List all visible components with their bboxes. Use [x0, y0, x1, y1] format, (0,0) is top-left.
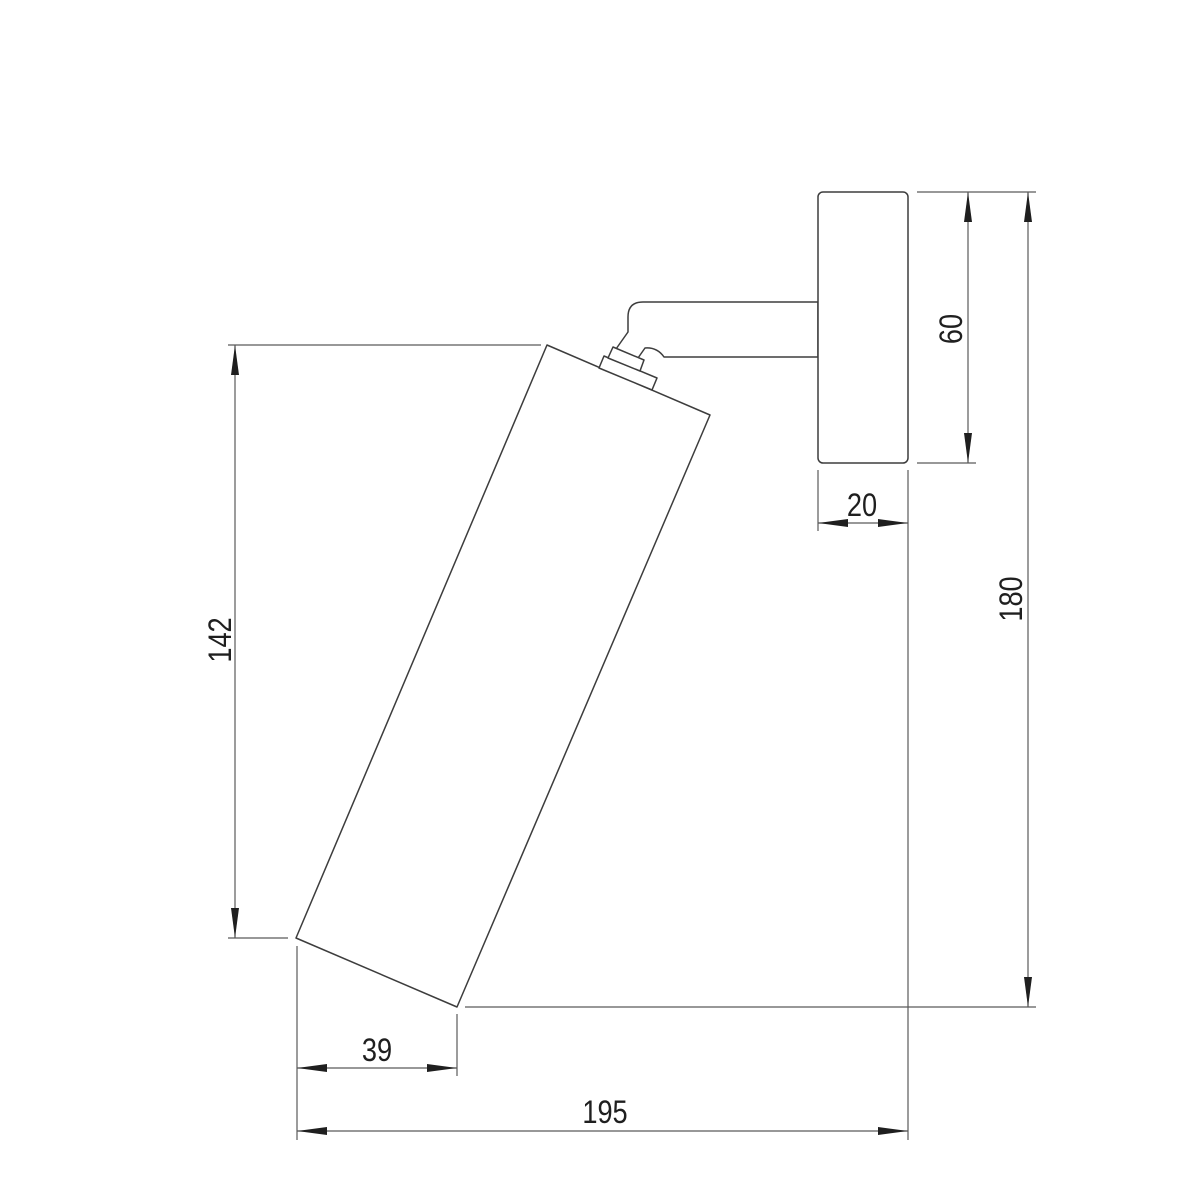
dim-label-180: 180	[994, 576, 1030, 621]
arrow-60-up	[964, 192, 972, 222]
arrow-142-down	[231, 908, 239, 938]
arrow-39-left	[297, 1064, 327, 1072]
dim-label-20: 20	[847, 488, 877, 524]
arrow-195-right	[878, 1127, 908, 1135]
arrow-60-down	[964, 433, 972, 463]
arrow-20-right	[878, 519, 908, 527]
technical-drawing-canvas: 142 39 195 20 60 180	[0, 0, 1200, 1200]
arrow-195-left	[297, 1127, 327, 1135]
dim-label-39: 39	[362, 1033, 392, 1069]
arrow-39-right	[427, 1064, 457, 1072]
arrow-180-up	[1024, 192, 1032, 222]
dim-label-142: 142	[203, 617, 239, 662]
dim-label-195: 195	[582, 1095, 627, 1131]
arrow-20-left	[818, 519, 848, 527]
wall-plate	[818, 192, 908, 463]
arrow-142-up	[231, 345, 239, 375]
dim-label-60: 60	[934, 314, 970, 344]
object-outline-group	[296, 192, 908, 1007]
drawing-svg: 142 39 195 20 60 180	[0, 0, 1200, 1200]
arrow-180-down	[1024, 977, 1032, 1007]
mounting-arm	[616, 302, 818, 358]
lamp-body	[296, 345, 710, 1007]
